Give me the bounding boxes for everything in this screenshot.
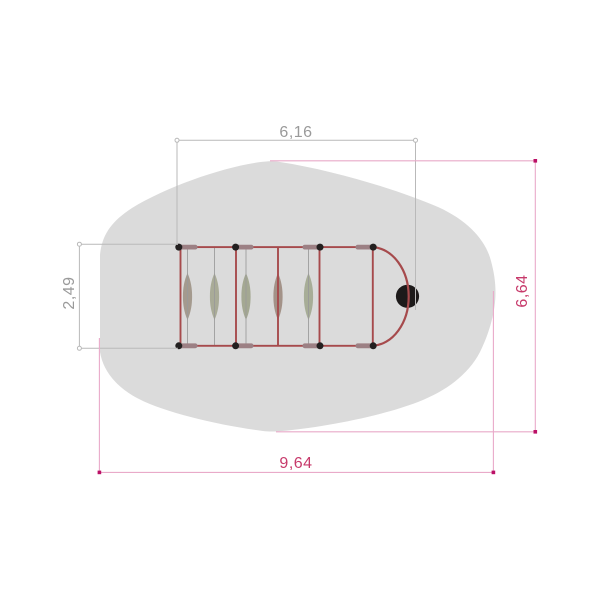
dim-marker-square — [98, 471, 102, 475]
dim-label-top-width: 6,16 — [256, 123, 336, 143]
dim-marker-square — [534, 430, 538, 434]
dim-marker-circle — [414, 138, 418, 142]
joint-node — [232, 342, 239, 349]
dim-label-bottom-width: 9,64 — [256, 454, 336, 474]
joint-node — [370, 244, 377, 251]
dim-marker-circle — [77, 346, 81, 350]
dim-label-left-height: 2,49 — [60, 253, 80, 333]
dim-label-right-height: 6,64 — [513, 251, 533, 331]
joint-node — [232, 244, 239, 251]
joint-node — [370, 342, 377, 349]
dim-marker-square — [492, 471, 496, 475]
joint-node — [317, 342, 324, 349]
dim-marker-circle — [77, 242, 81, 246]
dim-marker-square — [534, 159, 538, 163]
joint-node — [317, 244, 324, 251]
safety-zone-area — [100, 161, 496, 431]
plan-drawing — [0, 0, 600, 600]
dim-marker-circle — [175, 138, 179, 142]
plan-drawing-canvas: 6,16 2,49 6,64 9,64 — [0, 0, 600, 600]
